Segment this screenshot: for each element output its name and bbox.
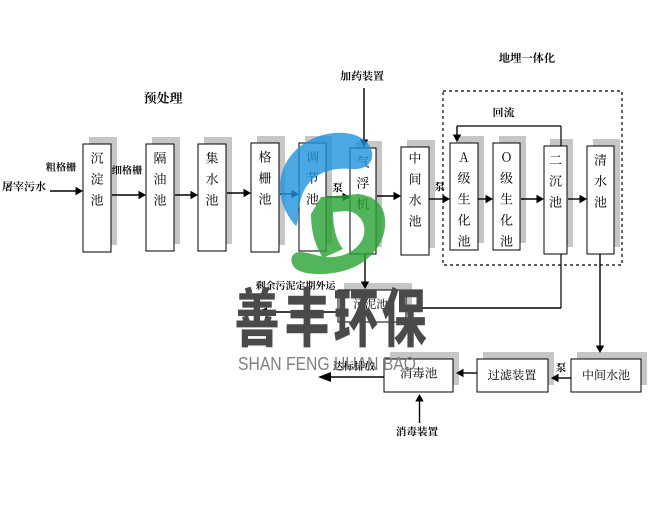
- svg-text:SHAN FENG HUAN BAO: SHAN FENG HUAN BAO: [238, 354, 416, 374]
